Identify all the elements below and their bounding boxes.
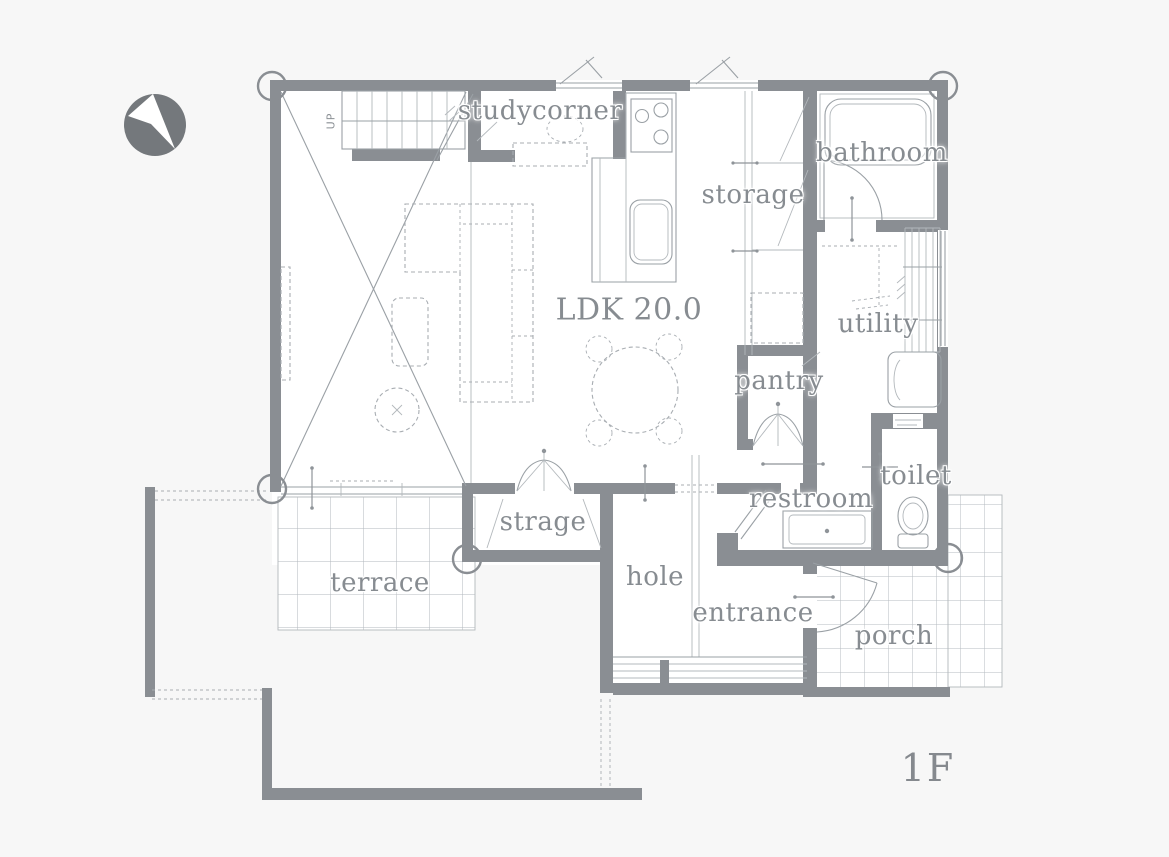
floor-plan-drawing — [0, 0, 1169, 857]
room-label-utility: utility — [838, 309, 919, 339]
room-label-strage: strage — [500, 507, 587, 537]
room-label-toilet: toilet — [880, 461, 952, 491]
room-label-bathroom: bathroom — [816, 138, 948, 168]
stairs-up-label: UP — [325, 113, 338, 130]
room-label-storage: storage — [702, 180, 805, 210]
floor-label: 1F — [901, 746, 956, 790]
room-label-entrance: entrance — [692, 598, 813, 628]
floor-plan-canvas: studycorner bathroom storage LDK 20.0 ut… — [0, 0, 1169, 857]
room-label-terrace: terrace — [330, 568, 430, 598]
room-label-studycorner: studycorner — [458, 96, 623, 126]
north-arrow-icon — [124, 94, 186, 156]
room-label-ldk: LDK 20.0 — [556, 293, 703, 328]
room-label-hole: hole — [626, 562, 684, 592]
room-label-pantry: pantry — [734, 366, 823, 396]
room-label-restroom: restroom — [749, 484, 873, 514]
room-label-porch: porch — [855, 621, 934, 651]
terrace-tiles — [278, 497, 475, 630]
